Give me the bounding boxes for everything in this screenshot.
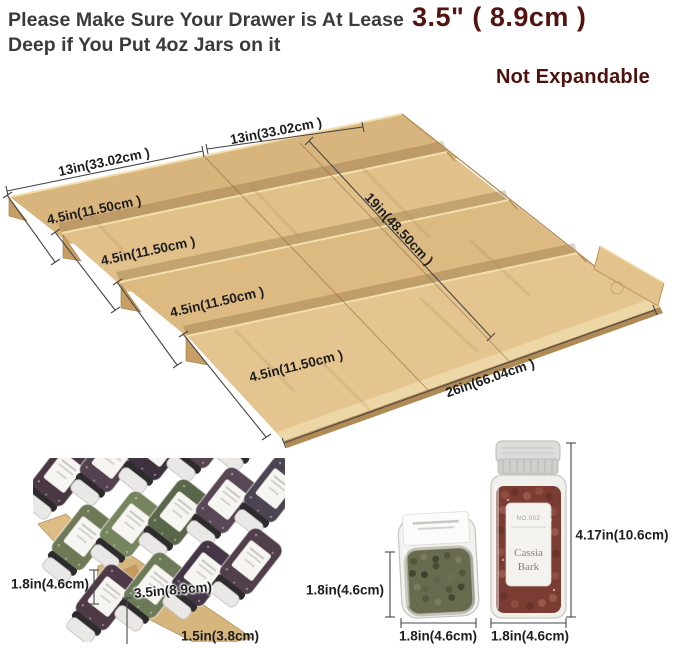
small-jar [397,511,479,619]
sticker-name-line1: Cassia [514,547,543,559]
drawer-photo-inset [17,389,310,648]
graphics-layer: NO.002 Cassia Bark [0,0,679,648]
title-text: Please Make Sure Your Drawer is At Lease [8,9,404,32]
large-jar-width-label: 1.8in(4.6cm) [491,629,569,644]
large-jar: NO.002 Cassia Bark [491,441,566,618]
large-jar-height-label: 4.17in(10.6cm) [575,528,668,543]
product-infographic: NO.002 Cassia Bark [0,0,679,648]
title: Please Make Sure Your Drawer is At Lease… [8,2,586,57]
title-line-1: Please Make Sure Your Drawer is At Lease… [8,2,586,33]
title-highlight: 3.5" ( 8.9cm ) [412,2,586,33]
photo-dim-jar-height: 1.8in(4.6cm) [11,577,89,592]
sticker-number: NO.002 [517,516,541,522]
not-expandable-note: Not Expandable [496,66,650,89]
sticker-name-line2: Bark [518,561,540,573]
small-jar-height-label: 1.8in(4.6cm) [306,583,384,598]
title-line-2: Deep if You Put 4oz Jars on it [8,34,586,57]
photo-dim-base-height: 1.5in(3.8cm) [181,629,259,644]
small-jar-width-label: 1.8in(4.6cm) [399,629,477,644]
